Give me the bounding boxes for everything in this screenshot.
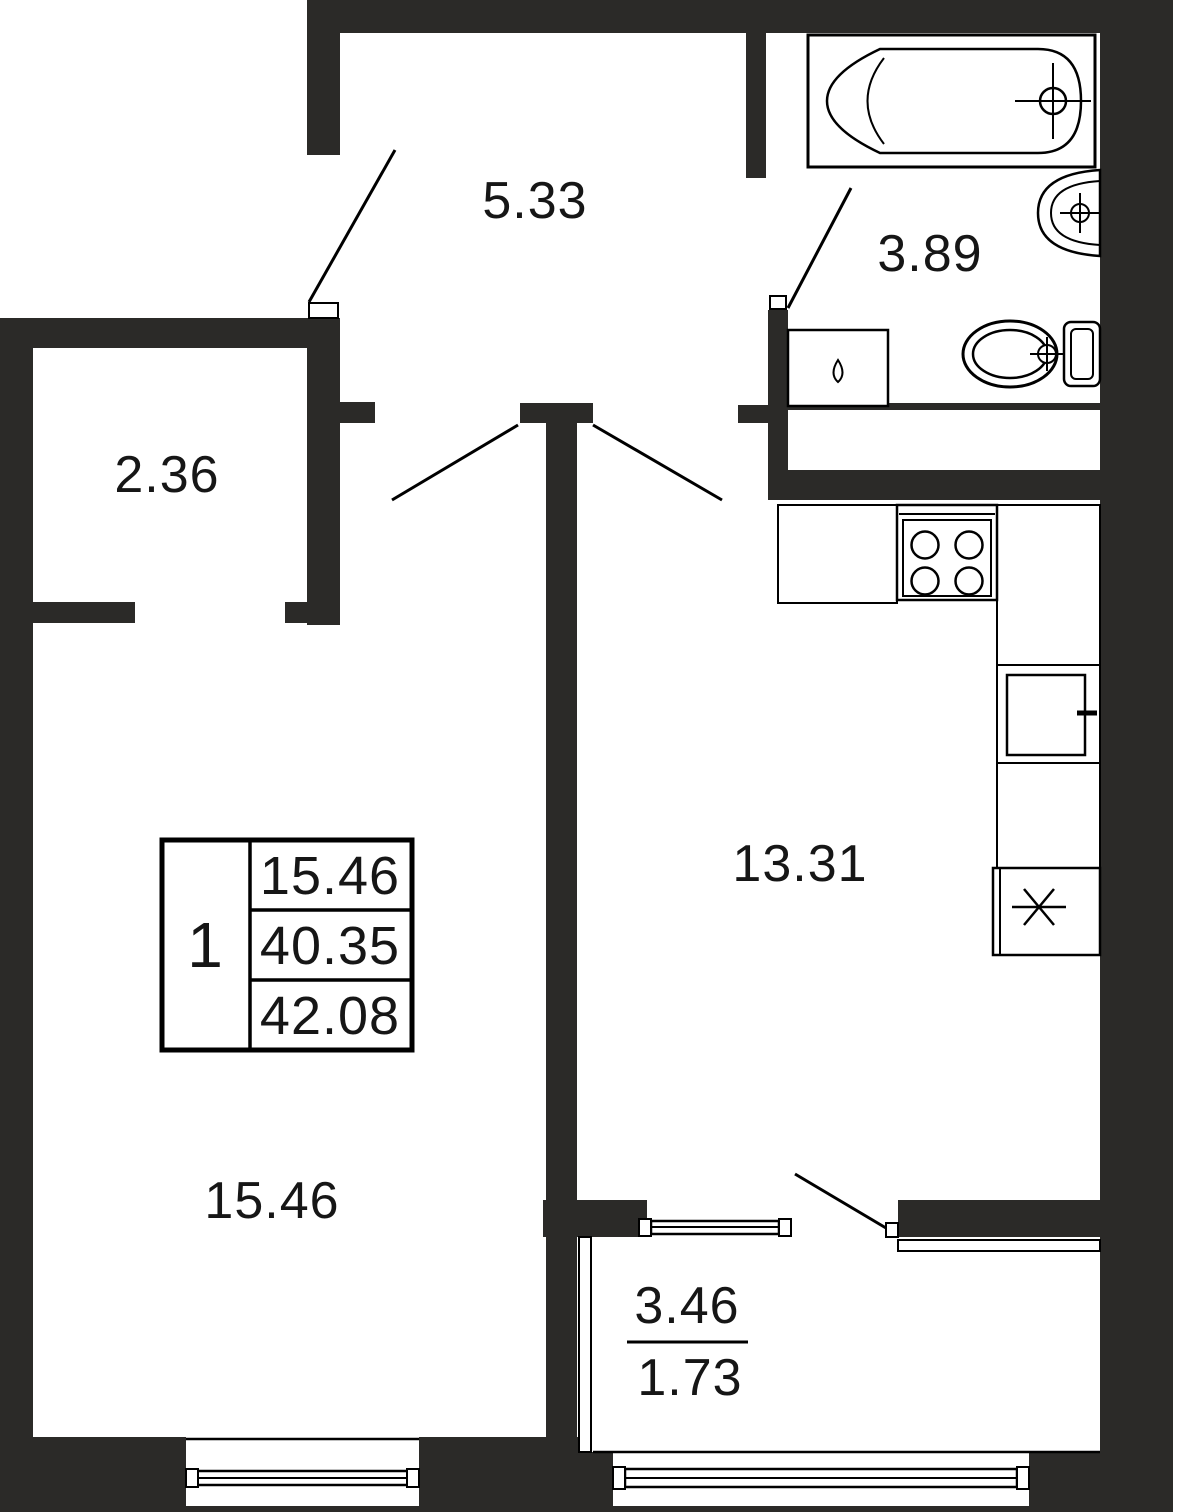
wall-bottom-left-band <box>0 1437 186 1512</box>
refrigerator-box <box>993 868 1100 955</box>
balcony-partition <box>579 1237 591 1452</box>
balcony-glazing-band <box>898 1240 1100 1251</box>
floor-plan-svg: 1 15.46 40.35 42.08 5.33 3.89 2.36 13.31… <box>0 0 1200 1512</box>
wall-kitchen-top <box>768 470 1100 500</box>
window-jamb-left <box>639 1219 651 1236</box>
balcony-door-swing <box>795 1174 886 1228</box>
toilet <box>963 321 1100 387</box>
room-label-closet: 2.36 <box>114 446 219 504</box>
jamb-bath-wall-top <box>770 296 786 309</box>
wall-central <box>546 423 577 1202</box>
wall-closet-stub <box>340 402 375 423</box>
kitchen-sink <box>1007 675 1097 755</box>
wall-balcony-left-chunk <box>543 1200 647 1237</box>
wall-balcony-bottom-right <box>1029 1452 1173 1512</box>
wall-right <box>1100 0 1173 1512</box>
window-opening <box>186 1440 419 1506</box>
unit-lower <box>997 763 1100 868</box>
wall-entry-segment <box>307 0 340 155</box>
balcony-area-total: 3.46 <box>634 1277 739 1335</box>
wall-central-lower <box>546 1237 577 1447</box>
wall-closet-top <box>0 318 307 348</box>
window-balcony-bottom <box>593 1452 1100 1506</box>
wall-left <box>0 318 33 1512</box>
window-jamb-left <box>613 1467 625 1489</box>
washing-machine <box>788 330 888 406</box>
kitchen-door-swing <box>593 425 722 500</box>
room-label-living-room: 15.46 <box>204 1172 339 1230</box>
living-room-door-swing <box>392 425 518 500</box>
jamb-balcony-door <box>886 1223 898 1237</box>
toilet-tank <box>1064 322 1100 386</box>
wall-closet-bottom-right <box>285 602 340 623</box>
room-label-hallway: 5.33 <box>482 172 587 230</box>
wall-bath-upper-bar <box>746 33 766 178</box>
table-living-area: 15.46 <box>260 846 400 906</box>
wall-bath-stub <box>738 405 768 423</box>
counter-top <box>778 505 897 603</box>
wall-closet-bottom-left <box>33 602 135 623</box>
washbasin <box>1038 170 1100 256</box>
unit-upper <box>997 505 1100 665</box>
info-table: 1 15.46 40.35 42.08 <box>162 840 412 1050</box>
wall-top <box>307 0 1173 33</box>
window-kitchen-balcony <box>639 1219 791 1236</box>
wall-hall-door-header <box>520 403 593 423</box>
room-label-bathroom: 3.89 <box>877 225 982 283</box>
wall-balcony-right-chunk <box>898 1200 1100 1237</box>
table-area-without-balcony: 40.35 <box>260 916 400 976</box>
table-rooms-count: 1 <box>187 909 223 981</box>
room-label-kitchen: 13.31 <box>732 835 867 893</box>
window-jamb-right <box>779 1219 791 1236</box>
refrigerator <box>993 868 1100 955</box>
window-jamb-left <box>186 1469 198 1487</box>
balcony-glazing <box>579 1237 1100 1452</box>
jamb-closet-wall-top <box>309 303 338 318</box>
wall-strip-under-balcony-window <box>613 1506 1029 1512</box>
window-opening <box>613 1454 1029 1506</box>
room-label-balcony: 3.46 1.73 <box>627 1277 748 1407</box>
table-total-area: 42.08 <box>260 986 400 1046</box>
wall-balcony-bottom-left <box>580 1452 613 1512</box>
sink-basin <box>1007 675 1085 755</box>
balcony-area-counted: 1.73 <box>637 1349 742 1407</box>
door-jambs <box>309 296 898 1237</box>
wall-strip-under-living-window <box>186 1506 419 1512</box>
floor-plan: 1 15.46 40.35 42.08 5.33 3.89 2.36 13.31… <box>0 0 1200 1512</box>
window-jamb-right <box>407 1469 419 1487</box>
wall-bottom-mid-band <box>419 1437 580 1512</box>
stove <box>897 505 997 600</box>
bathroom-door-swing <box>788 188 851 308</box>
door-swings <box>309 150 886 1228</box>
wall-closet-right <box>307 318 340 625</box>
window-jamb-right <box>1017 1467 1029 1489</box>
window-living-room <box>186 1439 419 1506</box>
entry-door-swing <box>309 150 395 302</box>
bathtub <box>808 35 1095 167</box>
